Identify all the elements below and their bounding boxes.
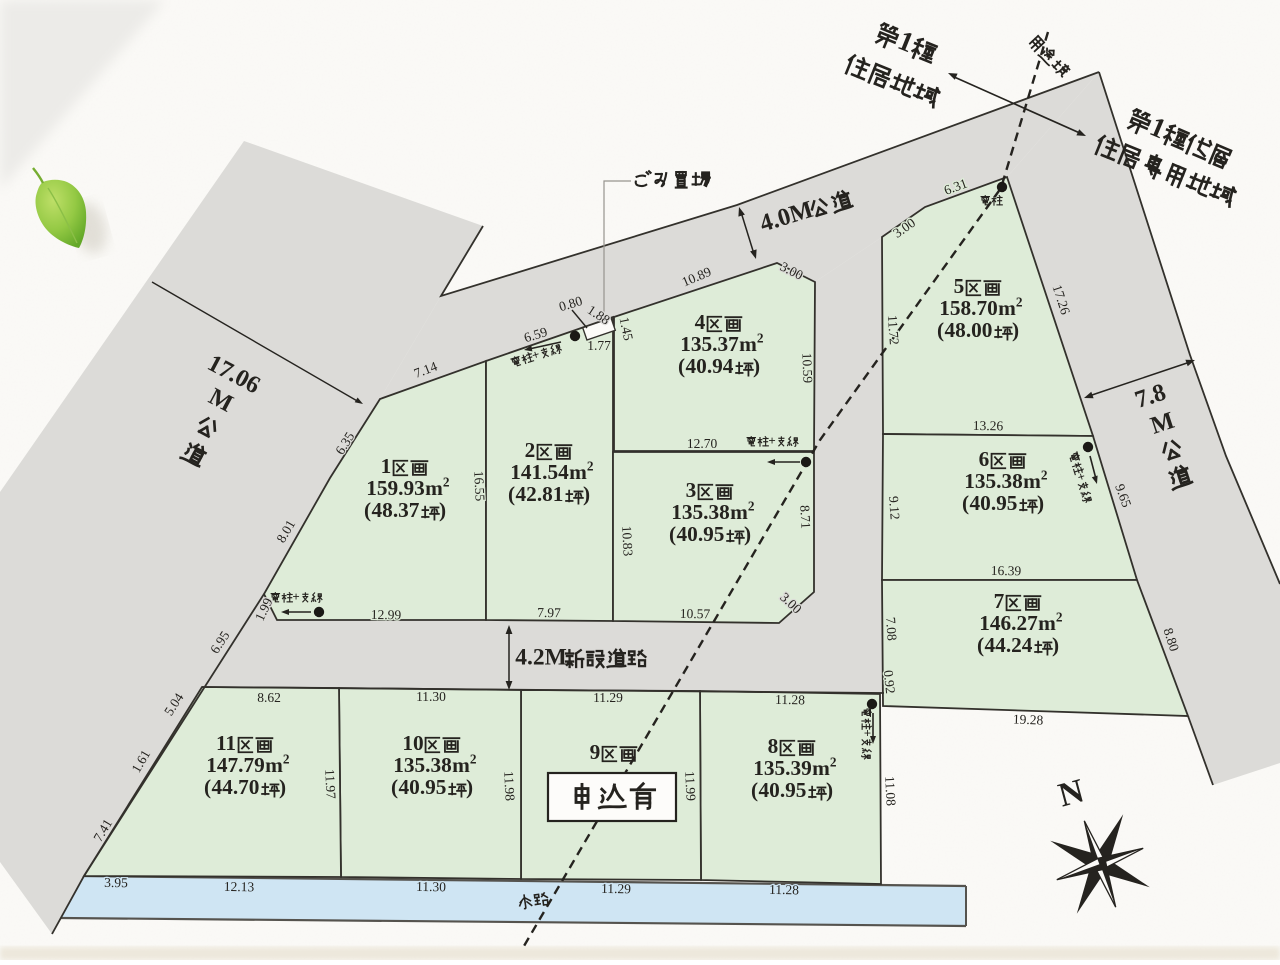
svg-text:7.97: 7.97 <box>537 605 561 620</box>
svg-text:44.24: 44.24 <box>985 633 1033 657</box>
svg-text:11.99: 11.99 <box>682 771 699 802</box>
svg-text:10: 10 <box>402 731 423 755</box>
svg-text:): ) <box>583 482 590 506</box>
svg-text:11.98: 11.98 <box>501 771 518 802</box>
svg-text:40.95: 40.95 <box>677 522 725 546</box>
svg-text:10.57: 10.57 <box>680 606 711 622</box>
svg-text:40.95: 40.95 <box>399 775 447 799</box>
svg-text:11.72: 11.72 <box>885 314 902 345</box>
svg-text:11.28: 11.28 <box>775 692 805 708</box>
svg-text:11.29: 11.29 <box>601 881 631 897</box>
svg-text:48.37: 48.37 <box>372 498 420 522</box>
svg-text:9.12: 9.12 <box>886 496 903 521</box>
svg-text:11.30: 11.30 <box>416 689 446 704</box>
svg-text:): ) <box>279 775 286 799</box>
svg-text:4.2M: 4.2M <box>515 644 567 670</box>
svg-text:11: 11 <box>216 731 236 755</box>
svg-text:135.39: 135.39 <box>753 756 812 780</box>
svg-text:40.94: 40.94 <box>686 354 734 378</box>
svg-text:9: 9 <box>590 740 601 764</box>
svg-text:1.77: 1.77 <box>587 338 611 353</box>
svg-text:(: ( <box>364 498 371 522</box>
svg-text:1: 1 <box>381 454 392 478</box>
svg-text:12.99: 12.99 <box>371 607 402 623</box>
svg-text:7: 7 <box>994 589 1005 613</box>
svg-text:147.79: 147.79 <box>206 753 265 777</box>
svg-text:8.62: 8.62 <box>257 690 281 705</box>
svg-text:11.08: 11.08 <box>882 776 899 807</box>
svg-text:2: 2 <box>525 438 536 462</box>
svg-text:+: + <box>860 729 874 736</box>
svg-text:10.59: 10.59 <box>799 353 815 384</box>
svg-text:): ) <box>439 498 446 522</box>
svg-text:3.95: 3.95 <box>104 875 128 890</box>
svg-text:): ) <box>1012 318 1019 342</box>
svg-text:(: ( <box>391 775 398 799</box>
svg-text:12.70: 12.70 <box>687 436 718 451</box>
svg-text:11.29: 11.29 <box>593 690 623 705</box>
svg-text:7.08: 7.08 <box>883 617 900 642</box>
svg-text:141.54: 141.54 <box>510 460 569 484</box>
svg-text:40.95: 40.95 <box>970 491 1018 515</box>
svg-text:): ) <box>1052 633 1059 657</box>
svg-text:11.30: 11.30 <box>416 879 446 895</box>
svg-text:8.71: 8.71 <box>797 505 813 529</box>
svg-text:(: ( <box>669 522 676 546</box>
svg-text:11.28: 11.28 <box>769 882 799 898</box>
svg-text:(: ( <box>977 633 984 657</box>
svg-text:10.83: 10.83 <box>619 525 636 556</box>
svg-text:4: 4 <box>695 310 706 334</box>
svg-text:40.95: 40.95 <box>759 778 807 802</box>
svg-text:): ) <box>1037 491 1044 515</box>
svg-text:(: ( <box>751 778 758 802</box>
svg-text:159.93: 159.93 <box>366 476 425 500</box>
svg-text:48.00: 48.00 <box>945 318 993 342</box>
svg-text:8: 8 <box>768 734 779 758</box>
svg-text:+: + <box>292 590 299 604</box>
svg-text:): ) <box>744 522 751 546</box>
svg-text:135.38: 135.38 <box>964 469 1023 493</box>
svg-text:13.26: 13.26 <box>973 418 1004 434</box>
svg-text:16.39: 16.39 <box>991 563 1022 579</box>
svg-text:0.92: 0.92 <box>881 669 898 694</box>
svg-text:16.55: 16.55 <box>471 470 488 501</box>
svg-text:44.70: 44.70 <box>212 775 260 799</box>
svg-text:(: ( <box>962 491 969 515</box>
svg-text:(: ( <box>204 775 211 799</box>
svg-text:(: ( <box>508 482 515 506</box>
svg-text:+: + <box>768 434 775 448</box>
svg-text:(: ( <box>937 318 944 342</box>
svg-text:3: 3 <box>686 478 697 502</box>
svg-text:146.27: 146.27 <box>979 611 1038 635</box>
svg-text:19.28: 19.28 <box>1013 712 1044 728</box>
svg-text:): ) <box>753 354 760 378</box>
svg-text:(: ( <box>678 354 685 378</box>
svg-text:): ) <box>466 775 473 799</box>
svg-text:5: 5 <box>954 274 965 298</box>
svg-text:135.38: 135.38 <box>393 753 452 777</box>
svg-text:42.81: 42.81 <box>516 482 564 506</box>
svg-text:): ) <box>826 778 833 802</box>
svg-text:11.97: 11.97 <box>322 769 339 800</box>
svg-text:135.37: 135.37 <box>680 332 739 356</box>
svg-text:135.38: 135.38 <box>671 500 730 524</box>
svg-text:12.13: 12.13 <box>224 879 255 895</box>
svg-text:6: 6 <box>979 447 990 471</box>
svg-text:158.70: 158.70 <box>939 296 998 320</box>
